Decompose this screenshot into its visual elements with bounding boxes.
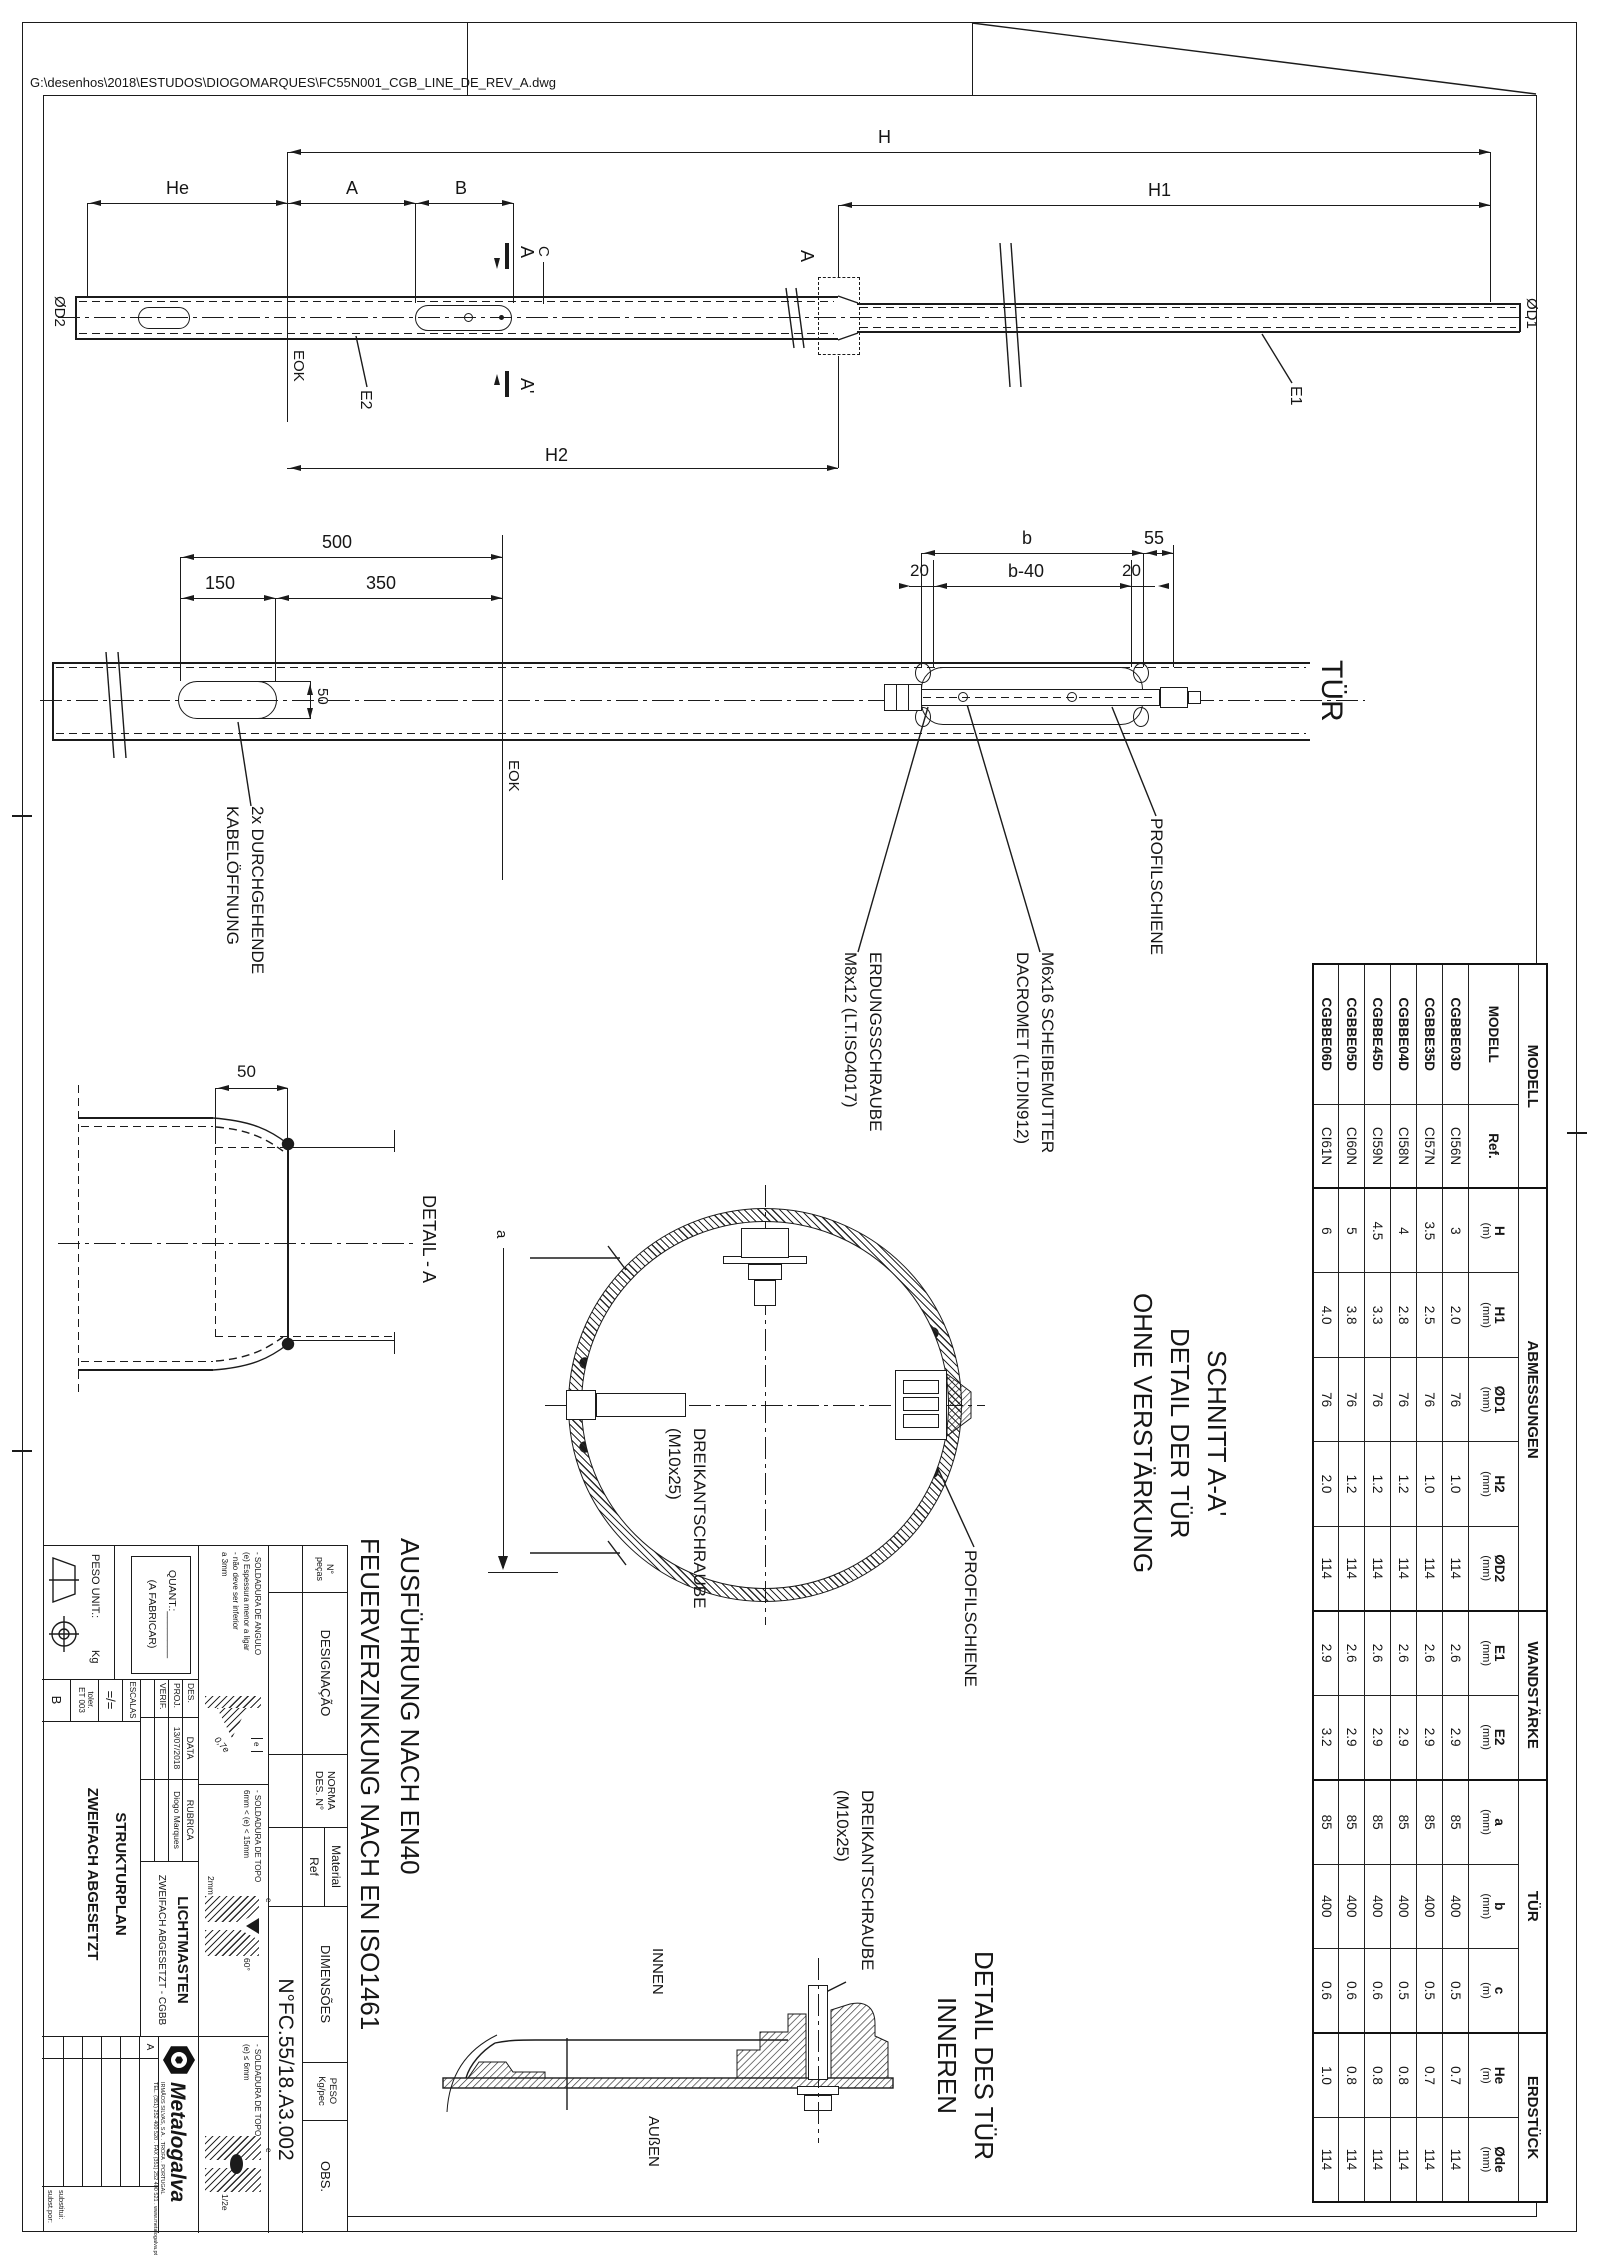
- product-name: LICHTMASTEN: [174, 1864, 191, 2036]
- detail-a-callout-label: A: [798, 250, 816, 262]
- earthing-screw-note: ERDUNGSSCHRAUBE M8x12 (LT.ISO4017): [838, 952, 888, 1197]
- dim-ext: [1490, 152, 1491, 302]
- mast-tip-cap: [1519, 303, 1521, 332]
- group-erdstueck: ERDSTÜCK: [1519, 2033, 1547, 2202]
- col: MODELL: [1469, 964, 1519, 1104]
- title-line: DETAIL DES TÜR: [965, 1938, 1002, 2173]
- e1-label: E1: [1287, 386, 1303, 406]
- detail-wall-dashed: [81, 1126, 213, 1127]
- dim-a-label: a: [494, 1230, 509, 1238]
- innen-label: INNEN: [650, 1948, 665, 1995]
- col-material: Material: [328, 1827, 342, 1906]
- weld1-val: 0,7e: [212, 1735, 231, 1755]
- dim-he-line: [87, 203, 287, 204]
- revision-a: A: [144, 2036, 156, 2058]
- centering-mark: [1567, 1132, 1587, 1134]
- brand-addr-2: TEL. (351) 252 400 520 . FAX (351) 252 4…: [152, 2082, 158, 2255]
- col-dimensoes: DIMENSÕES: [317, 1906, 332, 2062]
- dim-b40-line: [933, 586, 1131, 587]
- dim-b-line: [921, 553, 1143, 554]
- eok-label: EOK: [291, 350, 306, 382]
- profilschiene-label: PROFILSCHIENE: [1148, 818, 1165, 955]
- note-line: M8x12 (LT.ISO4017): [838, 952, 863, 1197]
- triangular-screw-note: DREIKANTSCHRAUBE (M10x25): [830, 1790, 880, 1990]
- group-wandstaerke: WANDSTÄRKE: [1519, 1611, 1547, 1780]
- dim-b-label: B: [455, 179, 467, 197]
- dim-b-label: b: [1022, 529, 1032, 547]
- door-corner-hole: [915, 663, 931, 683]
- dim-ext: [229, 681, 310, 682]
- dim-20-label: 20: [910, 562, 929, 579]
- tube-cap: [52, 662, 54, 740]
- dim-a-line: [287, 203, 415, 204]
- dim-ext: [275, 598, 276, 681]
- inner-detail-title: DETAIL DES TÜR INNEREN: [928, 1938, 1002, 2173]
- tube-outline: [52, 662, 1310, 664]
- dim-b-line: [415, 203, 513, 204]
- quant-box: QUANT.:________ (A FABRICAR): [131, 1556, 191, 1674]
- dim-h1-label: H1: [1148, 181, 1171, 199]
- dim-h-label: H: [878, 128, 891, 146]
- note-line: DACROMET (LT.DIN912): [1010, 952, 1035, 1202]
- dim-50-label: 50: [315, 688, 330, 705]
- dim-ext: [180, 557, 181, 681]
- mast-outline: [75, 296, 838, 298]
- header-divider-2: [972, 22, 973, 95]
- dim-a-line: [503, 1248, 504, 1568]
- substitui-label: substitui:: [56, 2190, 65, 2220]
- mast-centerline: [58, 317, 1534, 318]
- spec-table: MODELL ABMESSUNGEN WANDSTÄRKE TÜR ERDSTÜ…: [1312, 963, 1548, 2203]
- rail-slot: [903, 1380, 939, 1394]
- earthing-screw-block-line: [908, 684, 909, 711]
- col-ref: Ref: [306, 1827, 320, 1906]
- section-title: SCHNITT A-A' DETAIL DER TÜR OHNE VERSTÄR…: [1124, 1268, 1235, 1598]
- escalas-label: ESCALAS: [128, 1679, 137, 1721]
- dim-h2-label: H2: [545, 446, 568, 464]
- col: E1(mm): [1469, 1611, 1519, 1695]
- table-row: CGBBE04DCI58N42.8761.21142.62.9854000.50…: [1391, 964, 1417, 2202]
- cable-opening: [178, 681, 277, 719]
- joint-line: [287, 1143, 289, 1345]
- drawing-number: N°FC.55/18.A3.002: [273, 1906, 297, 2233]
- triangular-screw-shaft: [596, 1393, 686, 1417]
- mast-wall-dashed: [79, 333, 834, 334]
- tube-wall-dashed: [56, 733, 1306, 734]
- dim-ext: [933, 560, 934, 667]
- col-obs: OBS.: [317, 2120, 332, 2233]
- note-line: (M10x25): [662, 1428, 687, 1663]
- dim-h2-line: [287, 468, 838, 469]
- dim-500-line: [180, 557, 502, 558]
- dim-b40-label: b-40: [1008, 562, 1044, 580]
- dim-ext: [1131, 560, 1132, 667]
- weld2-e: e: [264, 1898, 273, 1902]
- note-line: KABELÖFFNUNG: [220, 806, 245, 1021]
- aussen-label: AUßEN: [646, 2116, 661, 2167]
- spec-table-wrap: MODELL ABMESSUNGEN WANDSTÄRKE TÜR ERDSTÜ…: [1310, 963, 1548, 2203]
- dim-55-label: 55: [1144, 529, 1164, 547]
- weld-note-1: - SOLDADURA DE ANGULO(e) Espessura menor…: [219, 1552, 263, 1655]
- col-designacao: DESIGNAÇÃO: [317, 1592, 332, 1754]
- bolt-centerline: [818, 1958, 819, 2143]
- col: H2(mm): [1469, 1442, 1519, 1526]
- standards-note: AUSFÜHRUNG NACH EN40 FEUERVERZINKUNG NAC…: [350, 1538, 430, 2078]
- dim-ext: [1143, 553, 1144, 667]
- dim-ext: [415, 203, 416, 303]
- table-row: CGBBE06DCI61N64.0762.01142.93.2854000.61…: [1313, 964, 1339, 2202]
- note-line: 2x DURCHGEHENDE: [245, 806, 270, 1021]
- mast-top-wall-dashed: [860, 327, 1516, 328]
- title-line: DETAIL DER TÜR: [1161, 1268, 1198, 1598]
- triangular-screw-note: DREIKANTSCHRAUBE (M10x25): [662, 1428, 712, 1663]
- dim-ext: [287, 1088, 288, 1140]
- eok-line: [502, 535, 503, 880]
- centering-mark: [12, 815, 32, 817]
- peso-unit-label: PESO UNIT.:: [88, 1554, 101, 1618]
- verif-label: VERIF.: [157, 1683, 167, 1709]
- eok-line: [287, 152, 288, 422]
- mast-base-cap: [75, 296, 77, 340]
- dim-ext: [838, 205, 839, 277]
- rev-letter: B: [48, 1679, 63, 1721]
- dim-he-label: He: [166, 179, 189, 197]
- section-flag: [505, 371, 509, 397]
- title-line: INNEREN: [928, 1938, 965, 2173]
- rail-end-stub: [1188, 691, 1201, 704]
- dim-a-target: [488, 1572, 558, 1573]
- col: Ref.: [1469, 1104, 1519, 1188]
- col: He(m): [1469, 2033, 1519, 2117]
- dim-ext: [87, 203, 88, 296]
- od1-label: ØD1: [1524, 298, 1539, 329]
- group-abmessungen: ABMESSUNGEN: [1519, 1188, 1547, 1610]
- col: H(m): [1469, 1188, 1519, 1272]
- tur-title: TÜR: [1316, 660, 1346, 722]
- dim-350-line: [275, 598, 502, 599]
- rail-end-fitting: [1160, 687, 1188, 708]
- date-value: 13/07/2018: [171, 1717, 181, 1779]
- dim-ext: [513, 203, 514, 303]
- section-flag: [505, 243, 509, 269]
- triangular-screw-head: [566, 1390, 596, 1420]
- note-line: FEUERVERZINKUNG NACH EN ISO1461: [350, 1538, 390, 2078]
- tube-outline: [52, 739, 1310, 741]
- product-sub: ZWEIFACH ABGESETZT - CGBB: [156, 1864, 168, 2036]
- brand-addr-1: IRMÃOS SILVAS, S.A. . TROFA . PORTUGAL: [159, 2082, 165, 2194]
- weld3-e: e: [264, 2148, 273, 2152]
- od2-label: ØD2: [52, 296, 67, 327]
- des-label: DES.: [185, 1683, 195, 1703]
- washer-nut-note: M6x16 SCHEIBEMUTTER DACROMET (LT.DIN912): [1010, 952, 1060, 1202]
- break-line: [78, 1085, 79, 1395]
- e2-label: E2: [357, 390, 373, 410]
- dim-ext: [1173, 545, 1174, 667]
- col: H1(mm): [1469, 1273, 1519, 1357]
- dim-ext: [229, 718, 310, 719]
- dim-a-label: A: [346, 179, 358, 197]
- weld2-angle: 60°: [241, 1958, 251, 1971]
- title-line: OHNE VERSTÄRKUNG: [1124, 1268, 1161, 1598]
- mast-wall-dashed: [79, 301, 834, 302]
- proj-label: PROJ.: [171, 1683, 181, 1708]
- lock-stud: [754, 1280, 776, 1306]
- col: Øde(mm): [1469, 2117, 1519, 2202]
- column-header-row: MODELL Ref. H(m) H1(mm) ØD1(mm) H2(mm) Ø…: [1469, 964, 1519, 2202]
- col: a(mm): [1469, 1780, 1519, 1864]
- group-header-row: MODELL ABMESSUNGEN WANDSTÄRKE TÜR ERDSTÜ…: [1519, 964, 1547, 2202]
- author-value: Diogo Marques: [171, 1779, 181, 1861]
- col: c(m): [1469, 1949, 1519, 2033]
- screw-symbol: [464, 313, 473, 322]
- table-row: CGBBE03DCI56N32.0761.01142.62.9854000.50…: [1443, 964, 1469, 2202]
- detail-outline: [78, 1117, 213, 1119]
- weld-note-2: - SOLDADURA DE TOPO6mm < (e) < 15mm: [241, 1790, 263, 1882]
- note-line: ERDUNGSSCHRAUBE: [863, 952, 888, 1197]
- peso-kg-label: Kg: [88, 1650, 101, 1663]
- dim-c-ext: [543, 262, 544, 304]
- door-corner-hole: [1133, 707, 1149, 727]
- dim-ext: [215, 1088, 216, 1144]
- group-tuer: TÜR: [1519, 1780, 1547, 2033]
- upper-tube-line: [288, 1340, 395, 1341]
- rail-screw: [958, 692, 968, 702]
- dim-500-label: 500: [322, 533, 352, 551]
- insert-dashed: [215, 1147, 216, 1337]
- col: ØD1(mm): [1469, 1357, 1519, 1441]
- col-norma: NORMADES. N°: [313, 1754, 337, 1827]
- brand-name: Metalogalva: [165, 2082, 189, 2202]
- detail-a-title: DETAIL - A: [420, 1195, 438, 1283]
- detail-wall-dashed: [81, 1361, 213, 1362]
- title-block: N°peças DESIGNAÇÃO NORMADES. N° Material…: [43, 1545, 348, 2232]
- title-line: SCHNITT A-A': [1198, 1268, 1235, 1598]
- screw-symbol: [499, 315, 504, 320]
- mast-top-outline: [857, 331, 1520, 333]
- dim-150-label: 150: [205, 574, 235, 592]
- table-row: CGBBE35DCI57N3.52.5761.01142.62.9854000.…: [1417, 964, 1443, 2202]
- earthing-screw-block: [884, 684, 922, 711]
- edge-tick: [394, 1332, 395, 1354]
- group-modell: MODELL: [1519, 964, 1547, 1188]
- section-a-label: A: [518, 246, 536, 258]
- detail-outline: [78, 1369, 213, 1371]
- lock-body: [748, 1264, 782, 1280]
- lock-nut: [741, 1228, 789, 1258]
- note-line: M6x16 SCHEIBEMUTTER: [1035, 952, 1060, 1202]
- weld-note-3: - SOLDADURA DE TOPO(e) ≤ 6mm: [241, 2044, 263, 2136]
- detail-a-callout-box: [818, 277, 860, 355]
- subst-por-label: subst.por:: [45, 2190, 54, 2223]
- rubrica-label: RUBRICA: [185, 1779, 195, 1861]
- dim-c-label: C: [536, 246, 551, 257]
- mast-top-wall-dashed: [860, 307, 1516, 308]
- upper-tube-line: [288, 1147, 395, 1148]
- data-label: DATA: [185, 1717, 195, 1779]
- table-row: CGBBE45DCI59N4.53.3761.21142.62.9854000.…: [1365, 964, 1391, 2202]
- section-a-prime-label: A': [518, 378, 536, 393]
- col: b(mm): [1469, 1864, 1519, 1948]
- col: E2(mm): [1469, 1695, 1519, 1779]
- rail-slot: [903, 1397, 939, 1411]
- cable-slot: [138, 307, 190, 329]
- weld3-val: 1/2e: [219, 2194, 229, 2211]
- file-path: G:\desenhos\2018\ESTUDOS\DIOGOMARQUES\FC…: [30, 76, 556, 89]
- centering-mark: [12, 1450, 32, 1452]
- note-line: (M10x25): [830, 1790, 855, 1990]
- note-line: DREIKANTSCHRAUBE: [855, 1790, 880, 1990]
- dim-ext: [838, 356, 839, 468]
- cable-opening-note: 2x DURCHGEHENDE KABELÖFFNUNG: [220, 806, 270, 1021]
- detail-centerline: [58, 1243, 418, 1244]
- insert-dashed: [215, 1336, 395, 1337]
- note-line: AUSFÜHRUNG NACH EN40: [390, 1538, 430, 2078]
- metalogalva-logo-icon: [163, 2044, 195, 2076]
- earthing-screw-block-line: [896, 684, 897, 711]
- mast-top-outline: [857, 303, 1520, 305]
- drawing-sheet: G:\desenhos\2018\ESTUDOS\DIOGOMARQUES\FC…: [0, 0, 1600, 2263]
- col: ØD2(mm): [1469, 1526, 1519, 1610]
- table-row: CGBBE05DCI60N53.8761.21142.62.9854000.60…: [1339, 964, 1365, 2202]
- edge-tick: [394, 1130, 395, 1152]
- dim-50-label: 50: [237, 1063, 256, 1080]
- dim-150-line: [180, 598, 275, 599]
- mast-outline: [75, 338, 838, 340]
- sheet-title-2: ZWEIFACH ABGESETZT: [84, 1724, 101, 2024]
- note-line: DREIKANTSCHRAUBE: [687, 1428, 712, 1663]
- col-pecas: N°peças: [314, 1546, 335, 1592]
- projection-symbol: [47, 1556, 79, 1676]
- dim-h1-line: [838, 205, 1490, 206]
- col-peso: PESOKg/pec: [315, 2062, 337, 2120]
- dim-ext: [921, 553, 922, 667]
- rail-screw: [1067, 692, 1077, 702]
- eok-label: EOK: [506, 760, 521, 792]
- rail-slot: [903, 1414, 939, 1428]
- dim-h-line: [287, 152, 1490, 153]
- door-corner-hole: [1133, 663, 1149, 683]
- profilschiene-label: PROFILSCHIENE: [962, 1550, 979, 1687]
- toler-label: toler.ET 003: [77, 1679, 95, 1721]
- weld2-gap: 2mm: [205, 1876, 215, 1895]
- sheet-title-1: STRUKTURPLAN: [112, 1724, 129, 2024]
- weld1-e: e: [252, 1742, 261, 1746]
- escala-value: =/=: [102, 1679, 117, 1721]
- dim-350-label: 350: [366, 574, 396, 592]
